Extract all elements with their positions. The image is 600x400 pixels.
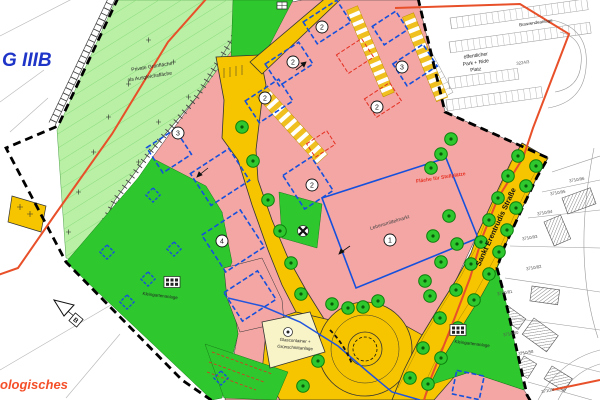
zoning-plan-map: B 2 2 2 2 3 2 3 4 1 G IIIB Private Grünf… [0, 0, 600, 400]
zone-label-g3b: G IIIB [2, 50, 52, 71]
block-marker: 2 [320, 24, 324, 31]
allotment-icon-east [450, 325, 466, 336]
archaeological-note-fragment: ologisches [0, 377, 68, 392]
block-marker: 4 [220, 238, 224, 245]
block-marker: 2 [310, 182, 314, 189]
block-marker: 3 [176, 130, 180, 137]
block-marker: 2 [291, 59, 295, 66]
block-marker: 2 [263, 95, 267, 102]
utility-square-icon [277, 2, 287, 9]
block-marker: 3 [400, 64, 404, 71]
plan-canvas: B 2 2 2 2 3 2 3 4 1 G IIIB Private Grünf… [0, 0, 600, 400]
allotment-icon-west [164, 277, 180, 288]
playground-pinwheel-icon [298, 226, 309, 237]
glass-container-icon [284, 328, 293, 337]
block-marker: 2 [375, 104, 379, 111]
block-marker: 1 [388, 237, 392, 244]
